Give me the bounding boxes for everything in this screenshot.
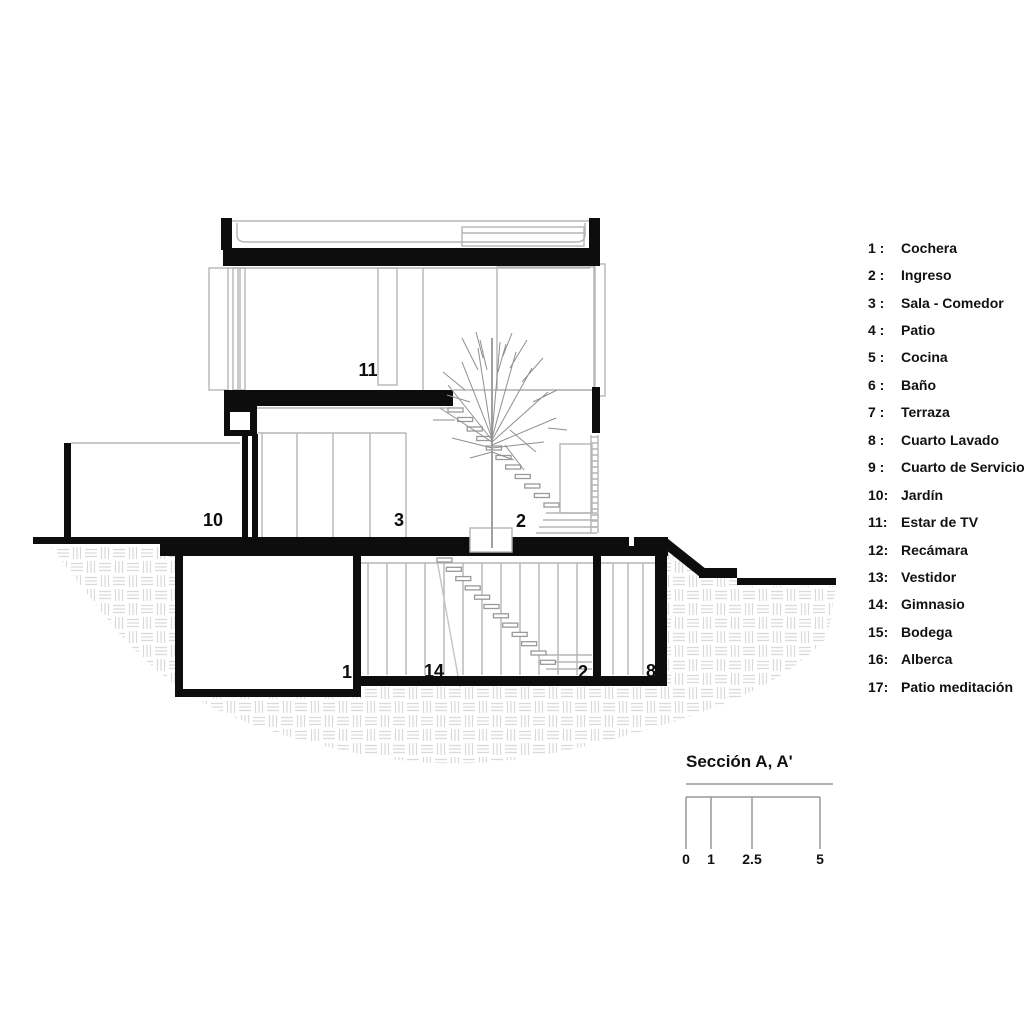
room-label-estar-de-tv: 11 — [358, 361, 377, 379]
scale-tick-2_5: 2.5 — [735, 851, 769, 867]
room-label-ingreso-ground: 2 — [516, 512, 526, 530]
legend-item-name: Sala - Comedor — [901, 295, 1004, 311]
legend-item-number: 14: — [868, 596, 894, 612]
legend-item: 9 :Cuarto de Servicio — [868, 454, 1024, 481]
legend-item-number: 7 : — [868, 404, 894, 420]
legend-item-number: 8 : — [868, 432, 894, 448]
legend-item-number: 6 : — [868, 377, 894, 393]
legend-item: 7 :Terraza — [868, 399, 1024, 426]
room-label-gimnasio: 14 — [424, 662, 444, 680]
legend-item: 14:Gimnasio — [868, 591, 1024, 618]
scale-tick-1: 1 — [694, 851, 728, 867]
legend-item-name: Cocina — [901, 349, 948, 365]
legend-item-name: Cuarto de Servicio — [901, 459, 1024, 475]
page: 11 10 3 2 1 14 2 8 1 :Cochera 2 :Ingreso… — [0, 0, 1024, 1024]
scale-bar-graphic — [686, 784, 833, 849]
legend-item: 11:Estar de TV — [868, 508, 1024, 535]
legend-item-number: 11: — [868, 514, 894, 530]
legend-item-name: Cuarto Lavado — [901, 432, 999, 448]
legend-item-number: 2 : — [868, 267, 894, 283]
scale-tick-5: 5 — [803, 851, 837, 867]
section-title: Sección A, A' — [686, 752, 793, 772]
legend-item: 17:Patio meditación — [868, 673, 1024, 700]
legend-item-name: Patio meditación — [901, 679, 1013, 695]
legend-item-name: Alberca — [901, 651, 952, 667]
room-label-cuarto-lavado: 8 — [646, 662, 656, 680]
legend-item-number: 12: — [868, 542, 894, 558]
legend-item-number: 15: — [868, 624, 894, 640]
room-label-ingreso-basement: 2 — [578, 663, 588, 681]
tree — [433, 332, 567, 548]
legend-item: 5 :Cocina — [868, 344, 1024, 371]
room-label-cochera: 1 — [342, 663, 352, 681]
legend-item-name: Bodega — [901, 624, 952, 640]
legend-item: 1 :Cochera — [868, 234, 1024, 261]
legend-item-name: Ingreso — [901, 267, 952, 283]
legend-item-number: 16: — [868, 651, 894, 667]
room-label-jardin: 10 — [203, 511, 223, 529]
legend-item-number: 10: — [868, 487, 894, 503]
legend-item-name: Cochera — [901, 240, 957, 256]
legend-item-name: Baño — [901, 377, 936, 393]
legend-item-name: Vestidor — [901, 569, 956, 585]
legend-item-number: 17: — [868, 679, 894, 695]
legend-item: 12:Recámara — [868, 536, 1024, 563]
legend-item-name: Patio — [901, 322, 935, 338]
legend: 1 :Cochera 2 :Ingreso 3 :Sala - Comedor … — [868, 234, 1024, 700]
legend-item-number: 3 : — [868, 295, 894, 311]
legend-item-number: 5 : — [868, 349, 894, 365]
legend-item-name: Jardín — [901, 487, 943, 503]
legend-item-number: 1 : — [868, 240, 894, 256]
room-label-sala-comedor: 3 — [394, 511, 404, 529]
legend-item: 6 :Baño — [868, 371, 1024, 398]
legend-item: 2 :Ingreso — [868, 261, 1024, 288]
legend-item: 8 :Cuarto Lavado — [868, 426, 1024, 453]
legend-item: 4 :Patio — [868, 316, 1024, 343]
legend-item: 10:Jardín — [868, 481, 1024, 508]
legend-item-number: 9 : — [868, 459, 894, 475]
legend-item-name: Recámara — [901, 542, 968, 558]
legend-item-name: Gimnasio — [901, 596, 965, 612]
legend-item-number: 13: — [868, 569, 894, 585]
legend-item-name: Terraza — [901, 404, 950, 420]
legend-item-name: Estar de TV — [901, 514, 978, 530]
legend-item: 15:Bodega — [868, 618, 1024, 645]
legend-item: 13:Vestidor — [868, 563, 1024, 590]
legend-item: 16:Alberca — [868, 646, 1024, 673]
legend-item: 3 :Sala - Comedor — [868, 289, 1024, 316]
legend-item-number: 4 : — [868, 322, 894, 338]
